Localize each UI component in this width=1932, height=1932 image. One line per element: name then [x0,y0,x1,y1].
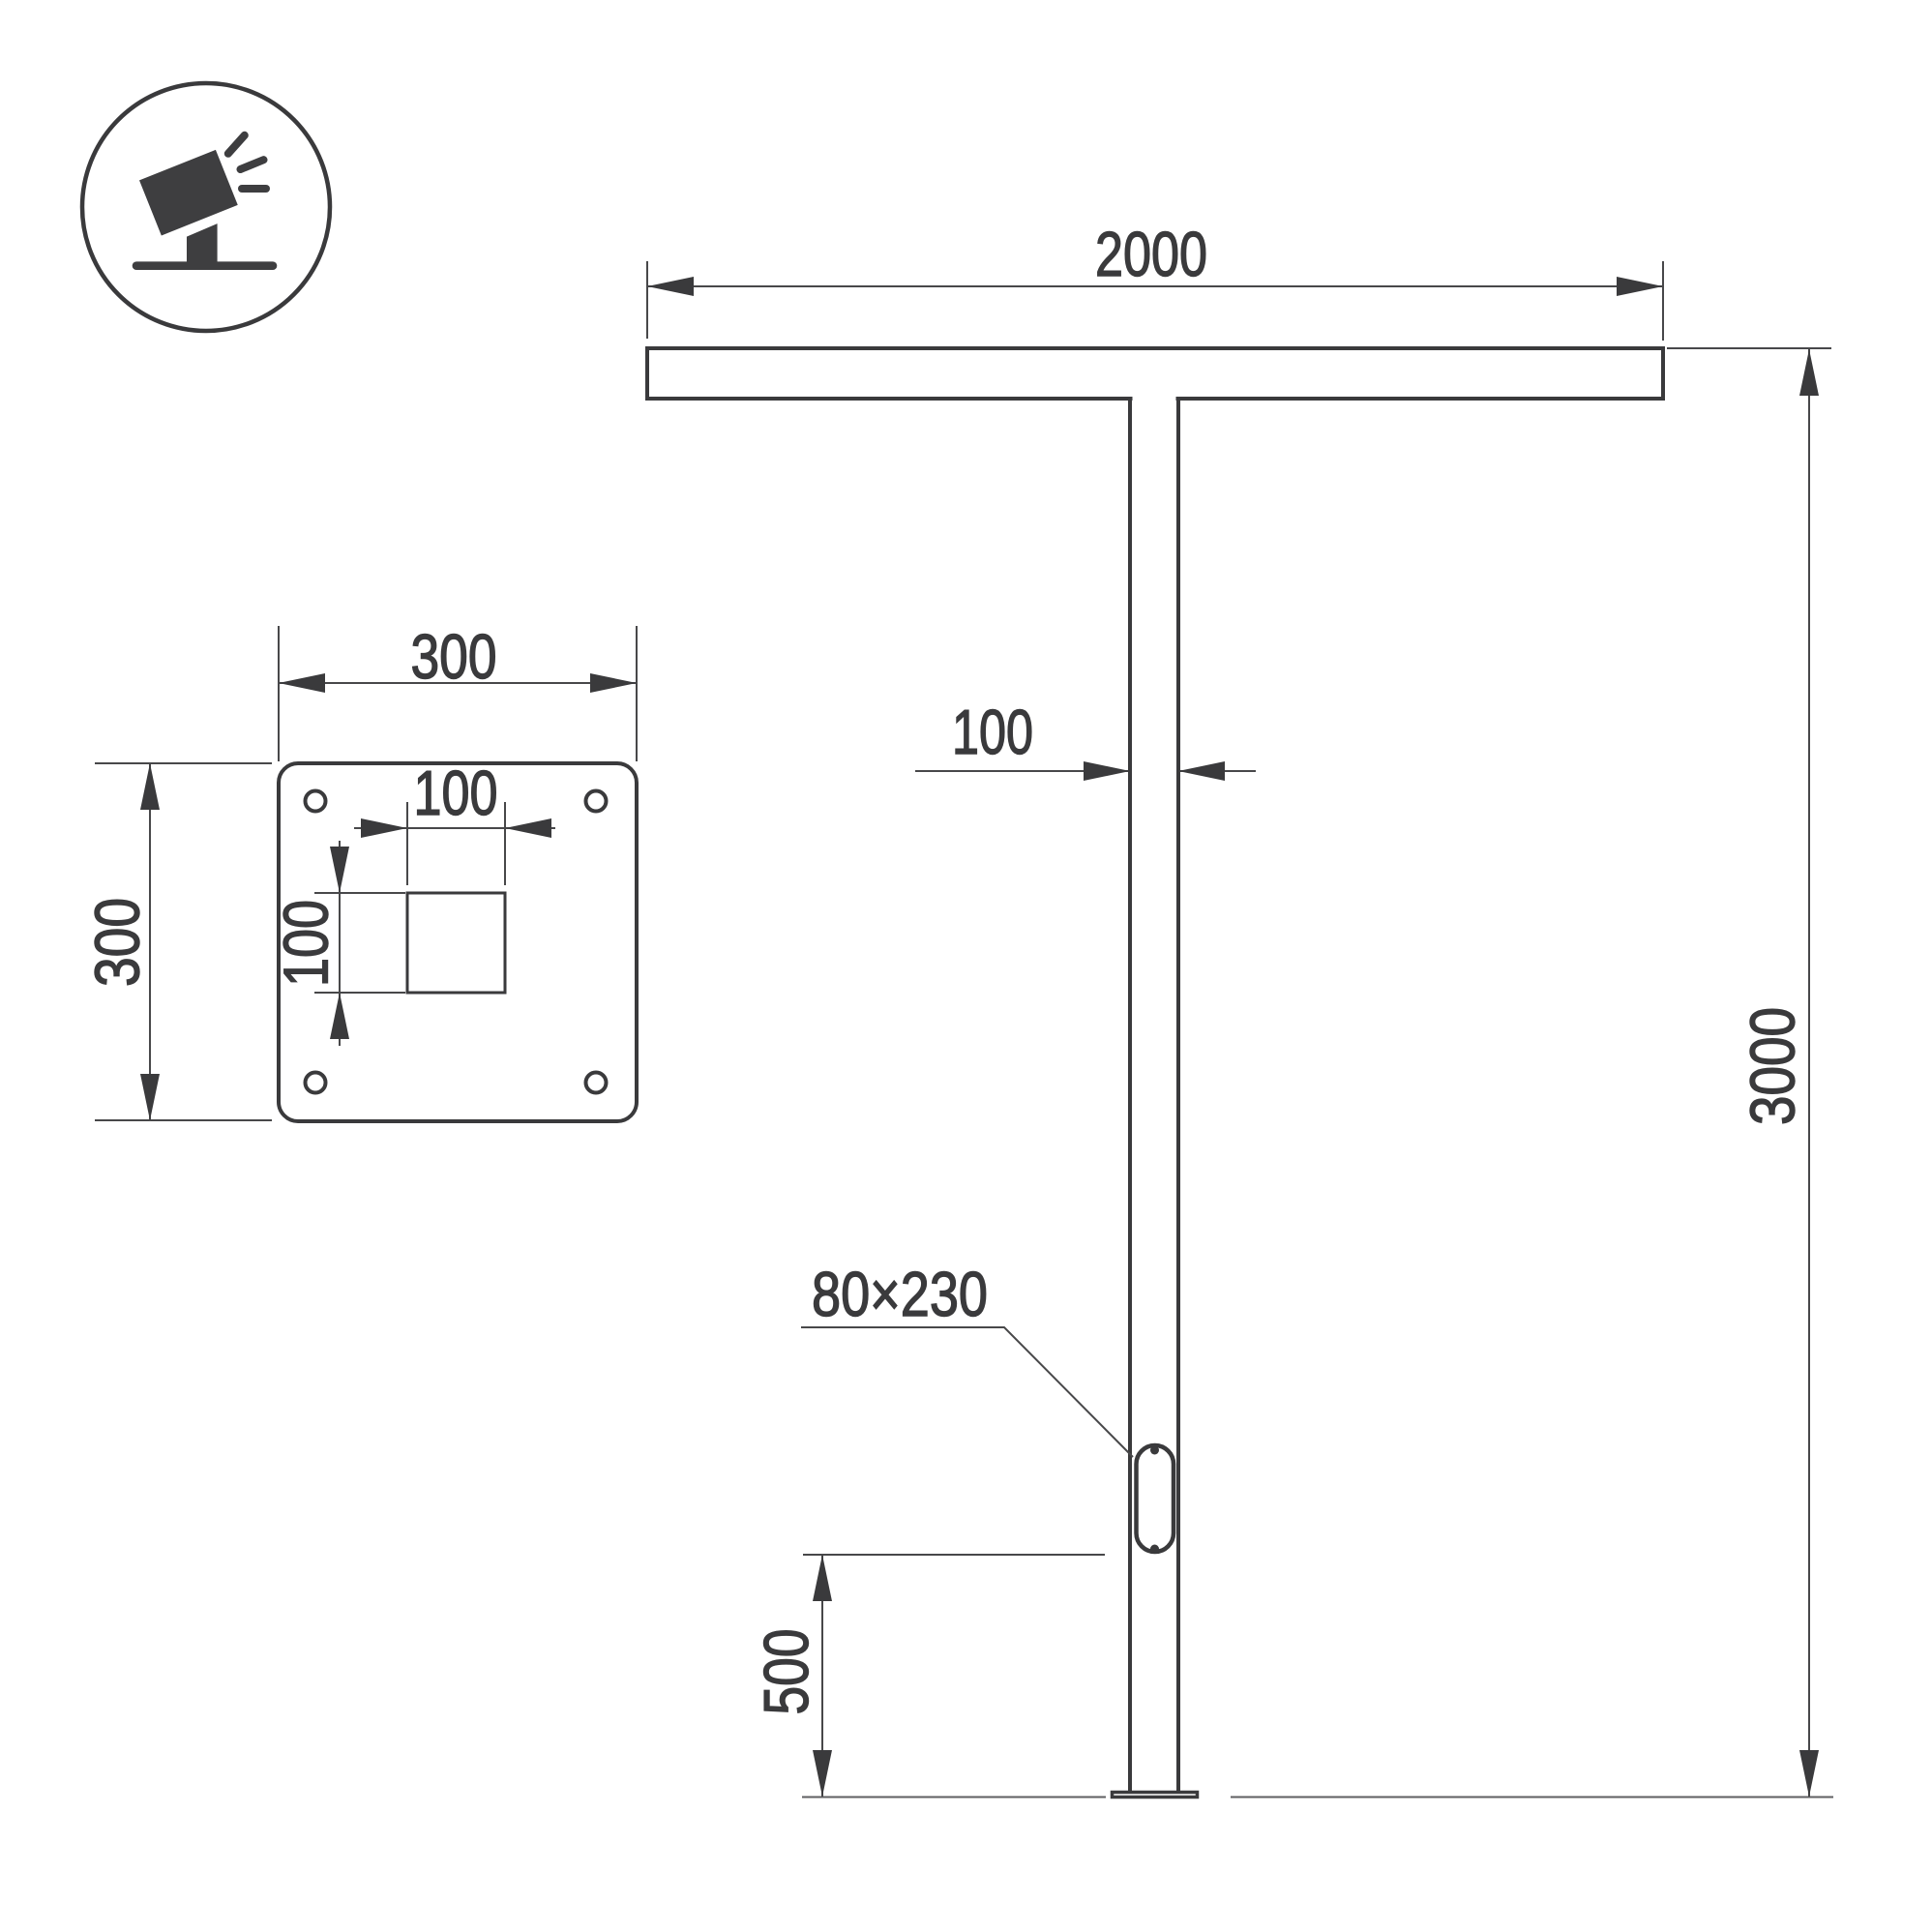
svg-text:80×230: 80×230 [812,1259,988,1329]
svg-text:100: 100 [414,758,498,828]
svg-text:100: 100 [952,697,1033,767]
svg-text:3000: 3000 [1738,1007,1808,1125]
svg-text:300: 300 [411,621,497,692]
svg-text:100: 100 [270,900,341,987]
svg-text:2000: 2000 [1095,219,1207,289]
svg-text:300: 300 [81,898,152,987]
svg-text:500: 500 [751,1629,821,1715]
